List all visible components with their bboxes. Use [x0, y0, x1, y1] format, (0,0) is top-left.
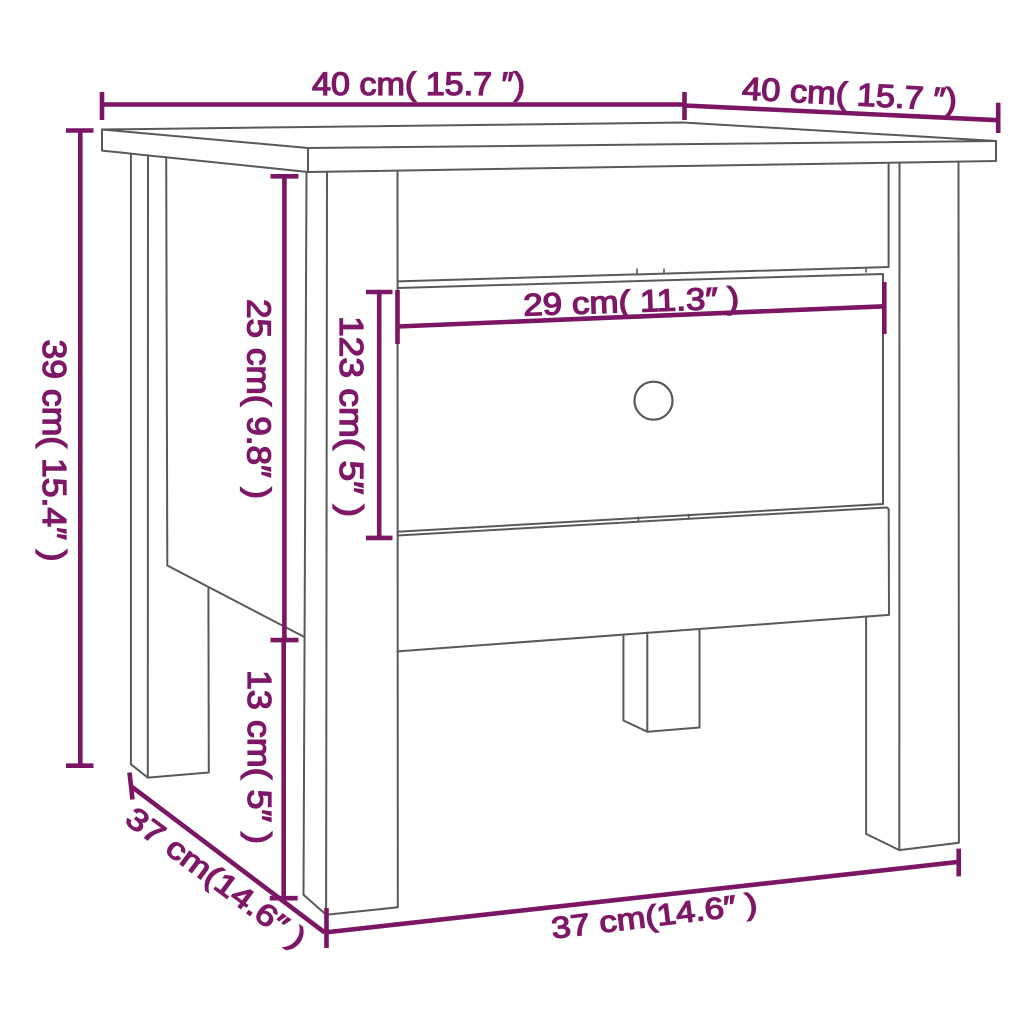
svg-text:39 cm( 15.4″ ): 39 cm( 15.4″ ) [36, 340, 73, 562]
svg-text:40 cm( 15.7 ″): 40 cm( 15.7 ″) [312, 66, 525, 102]
svg-text:123 cm( 5″ ): 123 cm( 5″ ) [333, 316, 370, 517]
svg-text:13 cm( 5″ ): 13 cm( 5″ ) [241, 670, 278, 844]
svg-text:25 cm( 9.8″ ): 25 cm( 9.8″ ) [241, 299, 278, 499]
svg-text:29 cm( 11.3″ ): 29 cm( 11.3″ ) [523, 280, 740, 322]
